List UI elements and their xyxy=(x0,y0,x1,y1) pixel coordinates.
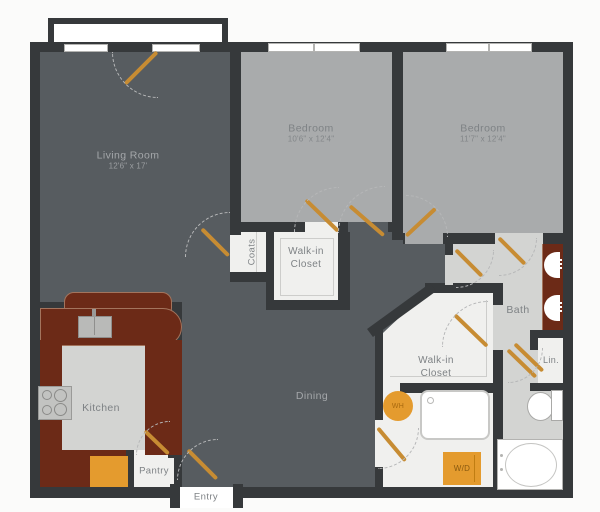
window xyxy=(152,44,200,52)
closet-line2: Closet xyxy=(418,367,454,380)
room-dims: 12'6" x 17' xyxy=(97,162,160,171)
wall xyxy=(266,300,350,310)
wall xyxy=(493,293,503,305)
closet-line1: Walk-in xyxy=(288,245,324,258)
closet-line1: Walk-in xyxy=(418,354,454,367)
room-dims: 10'6" x 12'4" xyxy=(288,135,334,144)
label-walk-in-closet-2: Walk-in Closet xyxy=(418,354,454,380)
tub-basin xyxy=(505,443,557,487)
wall xyxy=(230,52,241,235)
label-living-room: Living Room 12'6" x 17' xyxy=(97,150,160,171)
bathtub xyxy=(497,439,563,490)
window xyxy=(446,43,489,52)
label-linen: Lin. xyxy=(543,355,559,365)
wall xyxy=(338,222,350,310)
water-heater-label: WH xyxy=(392,403,404,410)
wall xyxy=(530,330,563,338)
burner xyxy=(54,403,67,416)
room-dims: 11'7" x 12'4" xyxy=(460,135,506,144)
label-bedroom-2: Bedroom 11'7" x 12'4" xyxy=(460,123,506,144)
room-name: Bedroom xyxy=(460,123,506,135)
floor-plan: WH W/D Living Room 12'6" x 17' Bedroom 1… xyxy=(0,0,600,512)
floor-kitchen xyxy=(62,340,145,455)
label-coats: Coats xyxy=(247,239,258,266)
window xyxy=(314,43,360,52)
burner xyxy=(42,390,52,400)
label-bath: Bath xyxy=(506,304,529,316)
wall xyxy=(230,272,241,282)
label-kitchen: Kitchen xyxy=(82,402,120,414)
window xyxy=(268,43,314,52)
opening-walk-in-2 xyxy=(493,305,503,350)
label-pantry: Pantry xyxy=(139,466,169,477)
wall xyxy=(233,484,243,508)
water-heater: WH xyxy=(383,391,413,421)
shower-drain xyxy=(427,397,434,404)
room-name: Bedroom xyxy=(288,123,334,135)
tub-faucet xyxy=(500,454,503,457)
shower xyxy=(420,390,490,440)
opening-hall-bath xyxy=(445,255,453,285)
washer-dryer-label: W/D xyxy=(454,464,470,473)
wall xyxy=(375,467,383,487)
faucet-dots xyxy=(560,302,562,304)
faucet xyxy=(92,309,96,317)
stove xyxy=(38,386,72,420)
washer-dryer-divider xyxy=(474,455,475,482)
window xyxy=(489,43,532,52)
wall xyxy=(241,272,274,282)
closet-line2: Closet xyxy=(288,258,324,271)
wall xyxy=(392,52,403,240)
wall xyxy=(266,222,274,310)
room-name: Living Room xyxy=(97,150,160,162)
window xyxy=(64,44,108,52)
wall xyxy=(375,330,383,420)
label-bedroom-1: Bedroom 10'6" x 12'4" xyxy=(288,123,334,144)
kitchen-sink xyxy=(78,316,112,338)
faucet-dots xyxy=(560,259,562,261)
toilet-bowl xyxy=(527,392,554,421)
burner xyxy=(54,389,67,402)
label-dining: Dining xyxy=(296,390,328,402)
toilet-tank xyxy=(551,390,563,421)
sink-divider xyxy=(94,317,95,335)
label-walk-in-closet-1: Walk-in Closet xyxy=(288,245,324,271)
opening-coats xyxy=(230,235,241,272)
wall xyxy=(170,484,180,508)
washer-dryer: W/D xyxy=(443,452,481,485)
burner xyxy=(42,405,52,415)
dishwasher xyxy=(90,456,128,487)
label-entry: Entry xyxy=(194,492,218,503)
